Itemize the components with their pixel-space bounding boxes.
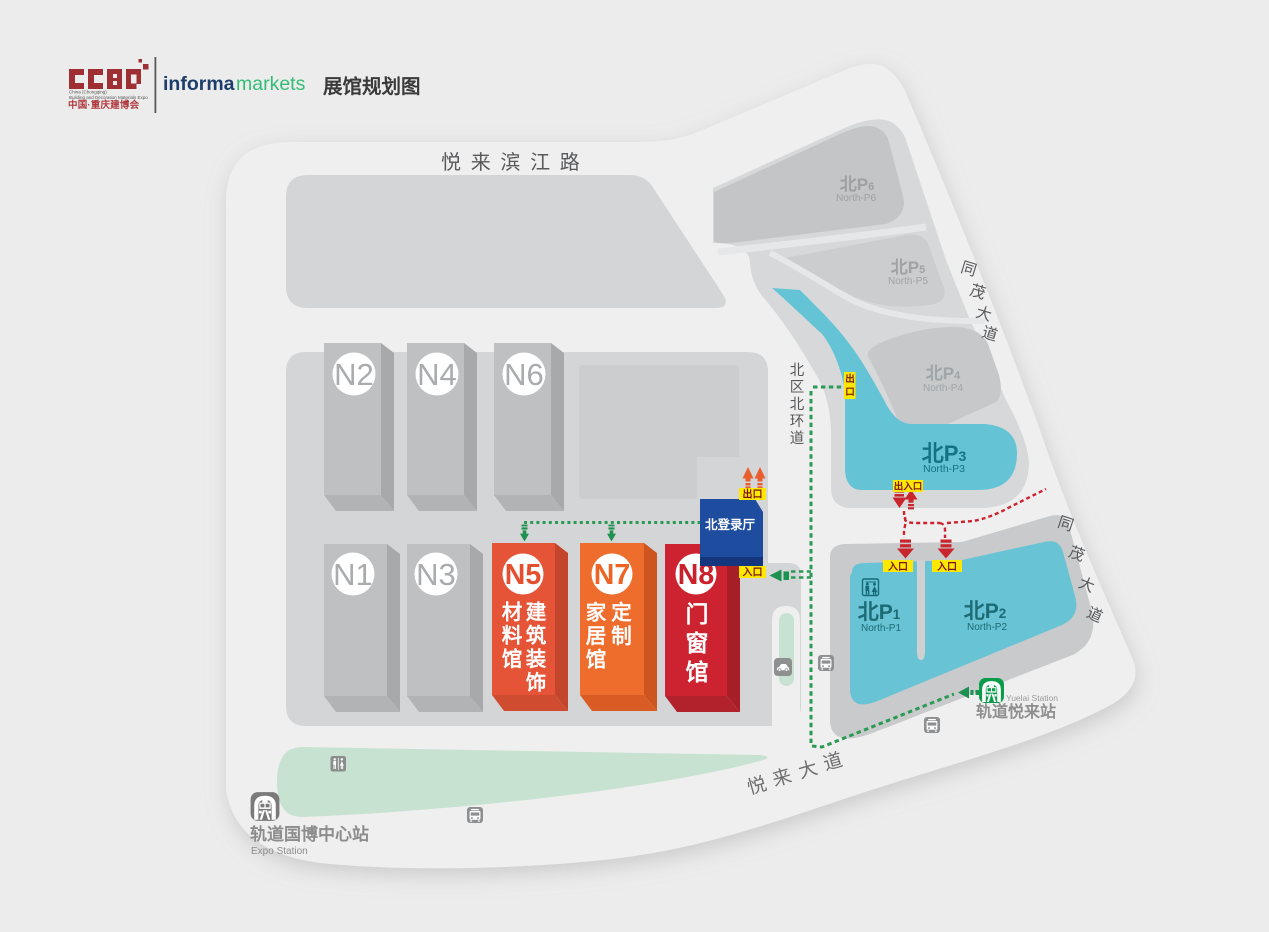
svg-text:家: 家 — [586, 601, 607, 625]
svg-text:装: 装 — [525, 647, 547, 671]
svg-text:North-P6: North-P6 — [836, 193, 876, 204]
svg-text:口: 口 — [845, 387, 855, 398]
svg-text:markets: markets — [236, 73, 306, 95]
svg-text:门: 门 — [686, 601, 709, 627]
svg-text:N6: N6 — [504, 357, 544, 392]
svg-text:N3: N3 — [416, 557, 456, 592]
svg-text:窗: 窗 — [686, 630, 709, 656]
svg-text:环: 环 — [790, 414, 805, 430]
svg-text:N1: N1 — [333, 557, 373, 592]
svg-text:入口: 入口 — [937, 561, 957, 573]
svg-text:居: 居 — [586, 625, 607, 648]
svg-text:制: 制 — [611, 625, 632, 648]
svg-text:饰: 饰 — [526, 671, 547, 695]
svg-text:展馆规划图: 展馆规划图 — [323, 75, 421, 98]
svg-text:北: 北 — [790, 362, 805, 379]
svg-text:入口: 入口 — [888, 561, 908, 573]
svg-text:道: 道 — [790, 430, 805, 447]
svg-text:中国·重庆建博会: 中国·重庆建博会 — [68, 99, 140, 111]
svg-text:North-P1: North-P1 — [861, 623, 901, 634]
svg-text:North-P3: North-P3 — [923, 463, 965, 475]
svg-text:北登录厅: 北登录厅 — [705, 517, 756, 532]
svg-text:出入口: 出入口 — [894, 481, 923, 493]
svg-text:出口: 出口 — [743, 488, 763, 501]
svg-text:N2: N2 — [334, 357, 374, 392]
svg-text:馆: 馆 — [586, 648, 607, 672]
svg-text:馆: 馆 — [686, 659, 709, 685]
svg-text:区: 区 — [790, 380, 805, 396]
svg-text:轨道国博中心站: 轨道国博中心站 — [250, 824, 369, 844]
svg-text:筑: 筑 — [526, 624, 547, 648]
svg-text:入口: 入口 — [743, 567, 763, 579]
svg-text:出: 出 — [845, 373, 855, 385]
svg-text:材: 材 — [502, 600, 523, 624]
svg-text:Expo Station: Expo Station — [251, 846, 308, 857]
svg-text:North-P5: North-P5 — [888, 276, 928, 287]
svg-text:North-P4: North-P4 — [923, 383, 963, 394]
svg-text:北: 北 — [790, 396, 805, 413]
svg-text:建: 建 — [526, 600, 547, 624]
svg-text:馆: 馆 — [502, 647, 523, 671]
svg-text:N5: N5 — [505, 559, 542, 591]
svg-text:轨道悦来站: 轨道悦来站 — [976, 702, 1056, 721]
svg-text:悦来滨江路: 悦来滨江路 — [441, 151, 590, 174]
svg-text:North-P2: North-P2 — [967, 622, 1007, 633]
svg-text:N4: N4 — [417, 357, 457, 392]
svg-text:料: 料 — [502, 624, 523, 648]
svg-text:informa: informa — [163, 73, 235, 95]
svg-text:定: 定 — [611, 601, 632, 625]
svg-text:Yuelai Station: Yuelai Station — [1006, 693, 1058, 703]
svg-text:China (Chongqing): China (Chongqing) — [69, 90, 107, 95]
svg-text:N7: N7 — [594, 559, 630, 591]
